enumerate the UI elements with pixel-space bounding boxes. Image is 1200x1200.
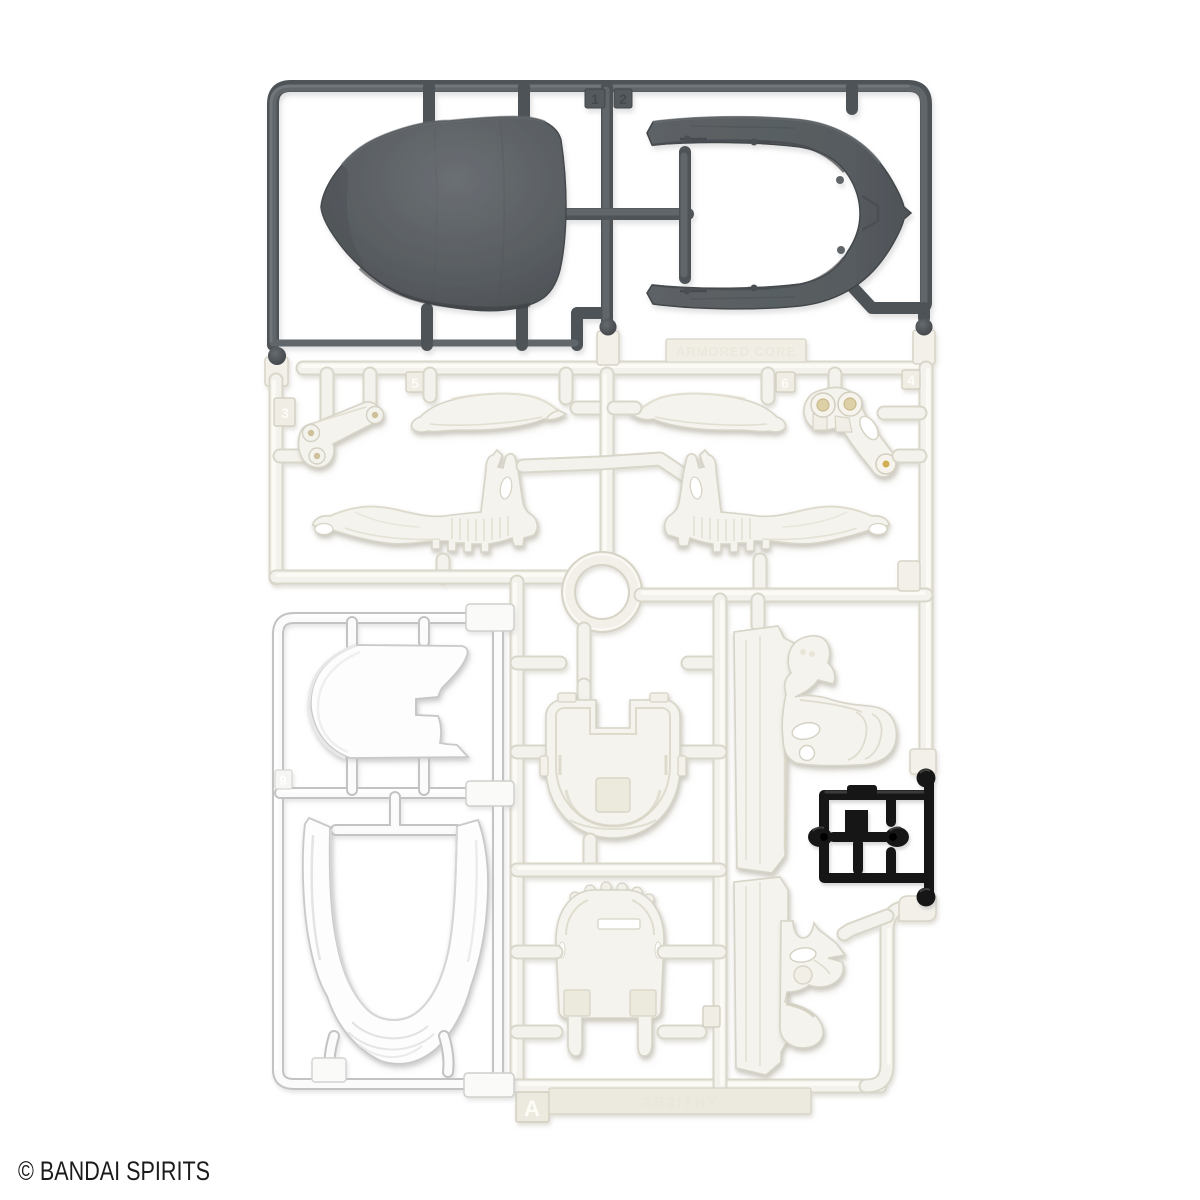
svg-text:A: A <box>524 1096 540 1121</box>
svg-text:© BANDAI SPIRITS: © BANDAI SPIRITS <box>18 1156 210 1186</box>
svg-text:AB2ITHX: AB2ITHX <box>641 1094 719 1111</box>
svg-text:2: 2 <box>619 91 627 107</box>
svg-text:9: 9 <box>279 773 286 788</box>
svg-text:4: 4 <box>907 372 915 388</box>
svg-text:1: 1 <box>591 91 599 107</box>
svg-text:5: 5 <box>411 375 419 391</box>
svg-text:6: 6 <box>781 375 789 391</box>
svg-text:ARMORED CORE: ARMORED CORE <box>676 344 796 359</box>
svg-text:3: 3 <box>281 405 289 421</box>
